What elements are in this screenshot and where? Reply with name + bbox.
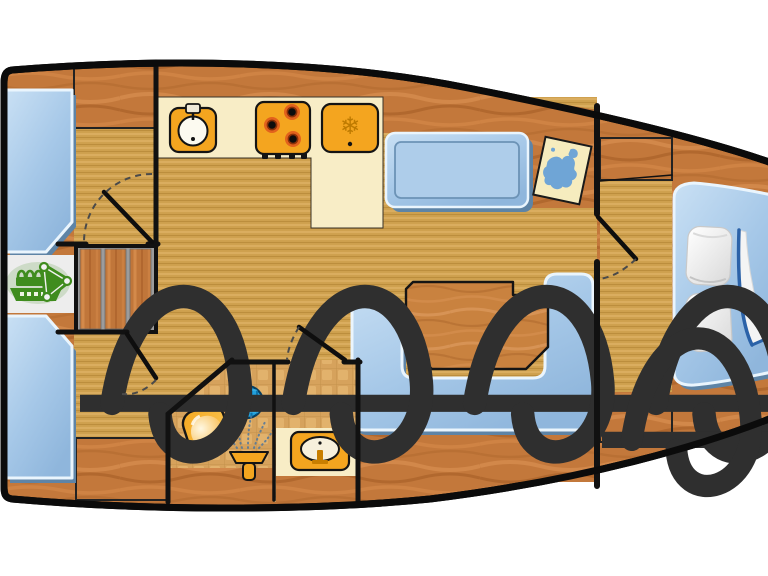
galley-sink-icon (170, 104, 216, 152)
berth-aft-starboard (6, 316, 72, 478)
pillow (686, 226, 733, 286)
step-plank (105, 249, 126, 329)
berth-aft-port (6, 90, 72, 252)
shower-floor-wood (168, 468, 274, 502)
fridge-icon: ❄ (322, 104, 378, 152)
basin-floor-wood (276, 474, 358, 502)
locker-cabinet (76, 438, 168, 500)
snowflake-icon: ❄ (340, 112, 360, 140)
settee-cushion (395, 142, 519, 198)
engine-compartment (4, 255, 78, 313)
nav-station (386, 133, 592, 212)
stove-icon (256, 102, 310, 159)
yacht-floor-plan: ❄ (0, 0, 768, 576)
step-plank (80, 249, 101, 329)
